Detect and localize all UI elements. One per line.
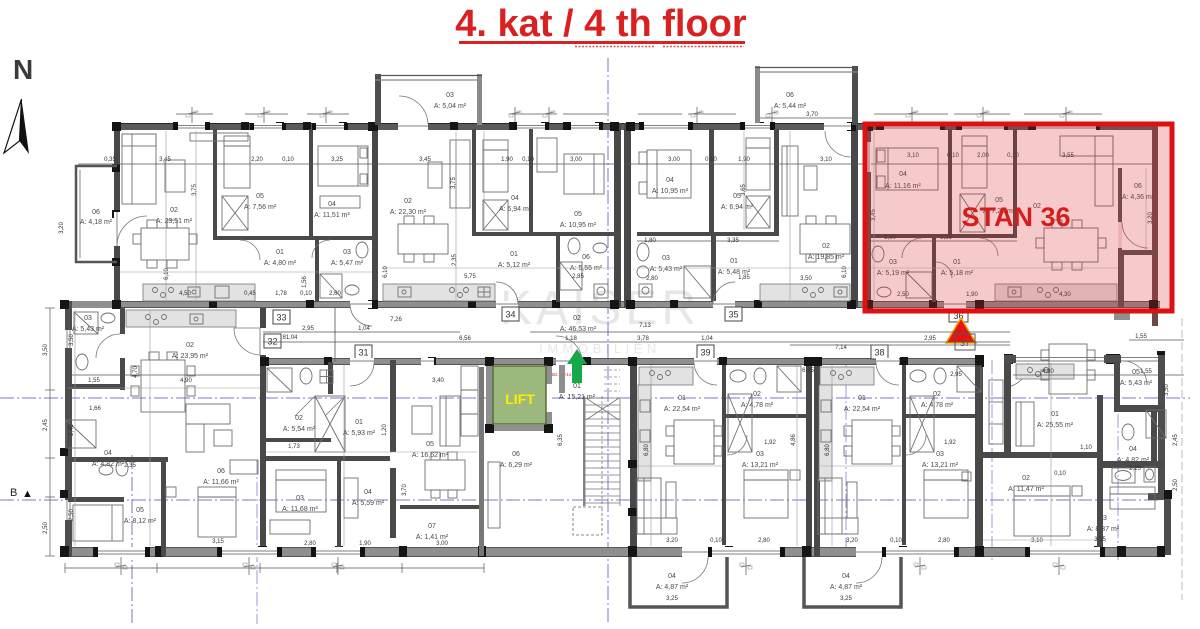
svg-text:0,10: 0,10 (705, 157, 717, 163)
svg-text:3,50: 3,50 (43, 344, 49, 356)
svg-text:2,15: 2,15 (1129, 466, 1141, 472)
svg-text:A: 6,94 m²: A: 6,94 m² (499, 206, 532, 213)
svg-text:03: 03 (296, 495, 304, 502)
svg-text:1,18: 1,18 (565, 336, 577, 342)
svg-text:03: 03 (84, 315, 92, 322)
svg-text:A: 5,54 m²: A: 5,54 m² (283, 426, 316, 433)
svg-text:6,35: 6,35 (802, 368, 814, 374)
svg-text:02: 02 (186, 342, 194, 349)
svg-text:A: 23,51 m²: A: 23,51 m² (156, 218, 193, 225)
svg-text:1,73: 1,73 (288, 444, 300, 450)
svg-text:3,75: 3,75 (192, 184, 198, 196)
svg-text:1,20: 1,20 (382, 424, 388, 436)
svg-text:38: 38 (874, 348, 884, 358)
svg-text:6,56: 6,56 (459, 336, 471, 342)
svg-text:03: 03 (936, 451, 944, 458)
svg-text:06: 06 (512, 451, 520, 458)
svg-text:A: 23,95 m²: A: 23,95 m² (172, 353, 209, 360)
svg-text:01: 01 (730, 258, 738, 265)
svg-text:3,10: 3,10 (820, 157, 832, 163)
svg-text:A: 16,62 m²: A: 16,62 m² (412, 452, 449, 459)
svg-text:01: 01 (678, 395, 686, 402)
svg-text:01: 01 (1051, 411, 1059, 418)
svg-text:02: 02 (573, 315, 581, 322)
svg-text:06: 06 (217, 468, 225, 475)
svg-text:3,78: 3,78 (637, 336, 649, 342)
svg-text:6,80: 6,80 (644, 444, 650, 456)
svg-text:6,80: 6,80 (825, 444, 831, 456)
svg-text:A: 11,51 m²: A: 11,51 m² (314, 212, 350, 219)
svg-text:A: 5,93 m²: A: 5,93 m² (343, 430, 376, 437)
svg-text:3,70: 3,70 (402, 484, 408, 496)
svg-text:3,00: 3,00 (570, 157, 582, 163)
svg-text:02: 02 (822, 243, 830, 250)
svg-text:04: 04 (666, 177, 674, 184)
svg-text:32: 32 (267, 337, 277, 347)
svg-text:5,75: 5,75 (464, 274, 476, 280)
svg-text:02: 02 (404, 198, 412, 205)
svg-text:A: 5,43 m²: A: 5,43 m² (650, 266, 683, 273)
svg-text:03: 03 (756, 451, 764, 458)
svg-text:A: 11,47 m²: A: 11,47 m² (1008, 486, 1044, 493)
svg-text:A: 8,12 m²: A: 8,12 m² (124, 518, 157, 525)
svg-text:2,45: 2,45 (69, 424, 75, 436)
svg-text:4,50: 4,50 (179, 291, 191, 297)
svg-text:A: 22,54 m²: A: 22,54 m² (664, 406, 701, 413)
svg-text:6,10: 6,10 (164, 268, 170, 280)
svg-text:4,86: 4,86 (791, 434, 797, 446)
svg-text:2,80: 2,80 (646, 276, 658, 282)
svg-text:3,70: 3,70 (806, 112, 818, 118)
svg-text:39: 39 (700, 348, 710, 358)
svg-text:05: 05 (733, 193, 741, 200)
svg-text:3,50: 3,50 (1164, 384, 1170, 396)
svg-text:04: 04 (511, 195, 519, 202)
svg-text:4,90: 4,90 (180, 378, 192, 384)
svg-text:3,00: 3,00 (436, 541, 448, 547)
svg-text:35: 35 (728, 310, 738, 320)
svg-text:2,50: 2,50 (43, 522, 49, 534)
svg-text:05: 05 (256, 193, 264, 200)
svg-text:05: 05 (426, 441, 434, 448)
svg-text:05: 05 (574, 211, 582, 218)
svg-text:IMMOBILIEN: IMMOBILIEN (539, 341, 661, 356)
svg-text:A: 15,21 m²: A: 15,21 m² (559, 394, 596, 401)
svg-text:2,95: 2,95 (924, 336, 936, 342)
svg-text:A: 5,59 m²: A: 5,59 m² (352, 500, 385, 507)
svg-text:37: 37 (960, 338, 970, 348)
svg-text:A: 4,87 m²: A: 4,87 m² (656, 584, 689, 591)
svg-text:1,85: 1,85 (738, 275, 750, 281)
svg-text:A: 4,87 m²: A: 4,87 m² (830, 584, 863, 591)
svg-text:A: 22,54 m²: A: 22,54 m² (844, 406, 881, 413)
svg-text:A: 6,29 m²: A: 6,29 m² (500, 462, 533, 469)
svg-text:LIFT: LIFT (505, 391, 535, 407)
svg-text:1,04: 1,04 (701, 336, 713, 342)
svg-text:A: 4,78 m²: A: 4,78 m² (921, 402, 954, 409)
svg-text:3,10: 3,10 (1031, 538, 1043, 544)
svg-text:▲: ▲ (22, 488, 33, 500)
svg-text:01: 01 (276, 249, 284, 256)
svg-text:1,04: 1,04 (358, 326, 370, 332)
svg-text:A: 4,80 m²: A: 4,80 m² (264, 260, 297, 267)
svg-text:2,20: 2,20 (251, 157, 263, 163)
svg-text:2,35: 2,35 (452, 254, 458, 266)
svg-text:03: 03 (446, 92, 454, 99)
svg-text:7,14: 7,14 (835, 345, 847, 351)
svg-text:A: 25,55 m²: A: 25,55 m² (1037, 422, 1074, 429)
svg-text:A: 6,94 m²: A: 6,94 m² (721, 204, 754, 211)
svg-text:B: B (10, 487, 17, 499)
svg-text:03: 03 (343, 249, 351, 256)
svg-text:A: 19,85 m²: A: 19,85 m² (808, 254, 845, 261)
svg-text:2,45: 2,45 (43, 419, 49, 431)
svg-text:3,25: 3,25 (666, 596, 678, 602)
svg-text:01: 01 (355, 419, 363, 426)
svg-text:A: 7,56 m²: A: 7,56 m² (244, 204, 277, 211)
svg-text:A: 22,30 m²: A: 22,30 m² (390, 209, 427, 216)
svg-text:1,92: 1,92 (764, 440, 776, 446)
svg-text:02: 02 (753, 391, 761, 398)
svg-text:A: 5,44 m²: A: 5,44 m² (774, 103, 807, 110)
svg-text:1,78: 1,78 (275, 291, 287, 297)
svg-text:31: 31 (358, 348, 368, 358)
svg-text:A: 5,47 m²: A: 5,47 m² (331, 260, 364, 267)
svg-text:2,80: 2,80 (938, 538, 950, 544)
svg-text:A: 4,18 m²: A: 4,18 m² (80, 219, 113, 226)
svg-text:02: 02 (1022, 475, 1030, 482)
svg-text:01: 01 (573, 383, 581, 390)
svg-text:2,50: 2,50 (69, 509, 75, 521)
svg-text:06: 06 (92, 209, 100, 216)
svg-text:1,80: 1,80 (644, 238, 656, 244)
svg-text:1,55: 1,55 (88, 378, 100, 384)
svg-text:1,66: 1,66 (89, 406, 101, 412)
svg-text:1,56: 1,56 (302, 276, 308, 288)
svg-text:3,50: 3,50 (69, 334, 75, 346)
svg-text:1,10: 1,10 (1080, 445, 1092, 451)
svg-text:0,10: 0,10 (282, 157, 294, 163)
svg-text:6,10: 6,10 (842, 266, 848, 278)
svg-text:1,90: 1,90 (359, 541, 371, 547)
svg-text:01: 01 (510, 251, 518, 258)
svg-text:34: 34 (505, 310, 515, 320)
svg-text:01: 01 (858, 395, 866, 402)
svg-text:A: 13,21 m²: A: 13,21 m² (922, 462, 959, 469)
svg-text:03: 03 (1099, 515, 1107, 522)
svg-text:A: 5,43 m²: A: 5,43 m² (1120, 380, 1153, 387)
svg-text:N: N (13, 54, 33, 85)
svg-text:3,20: 3,20 (59, 222, 65, 234)
svg-text:3,35: 3,35 (727, 238, 739, 244)
svg-text:04: 04 (364, 489, 372, 496)
svg-text:06: 06 (786, 92, 794, 99)
svg-text:A: 4,78 m²: A: 4,78 m² (741, 402, 774, 409)
svg-text:KAISER: KAISER (500, 282, 700, 335)
svg-text:0,10: 0,10 (1054, 471, 1066, 477)
svg-text:0,10: 0,10 (522, 157, 534, 163)
svg-text:4,70: 4,70 (133, 366, 139, 378)
svg-text:0,10: 0,10 (890, 538, 902, 544)
svg-text:3,40: 3,40 (432, 378, 444, 384)
svg-text:A: 5,43 m²: A: 5,43 m² (72, 326, 105, 333)
svg-text:2,45: 2,45 (1173, 434, 1179, 446)
svg-text:05: 05 (136, 507, 144, 514)
svg-text:3,50: 3,50 (800, 276, 812, 282)
svg-text:81,04: 81,04 (282, 335, 298, 341)
svg-text:0,10: 0,10 (710, 538, 722, 544)
svg-text:7,26: 7,26 (390, 317, 402, 323)
svg-text:02: 02 (295, 415, 303, 422)
svg-text:07: 07 (428, 523, 436, 530)
svg-text:4,80: 4,80 (1042, 369, 1054, 375)
svg-text:04: 04 (842, 573, 850, 580)
svg-text:04: 04 (328, 201, 336, 208)
svg-text:0,35: 0,35 (104, 157, 116, 163)
svg-text:3,25: 3,25 (840, 596, 852, 602)
svg-text:3,00: 3,00 (668, 157, 680, 163)
svg-text:02: 02 (170, 207, 178, 214)
svg-text:1,90: 1,90 (738, 157, 750, 163)
svg-text:2,80: 2,80 (758, 538, 770, 544)
svg-text:03: 03 (662, 255, 670, 262)
svg-text:A: 1,41 m²: A: 1,41 m² (416, 534, 449, 541)
svg-text:A: 5,55 m²: A: 5,55 m² (570, 265, 603, 272)
svg-text:STAN 36: STAN 36 (961, 202, 1070, 232)
svg-text:02: 02 (933, 391, 941, 398)
svg-text:0,10: 0,10 (300, 291, 312, 297)
svg-text:A: 5,04 m²: A: 5,04 m² (434, 103, 467, 110)
svg-text:06: 06 (582, 254, 590, 261)
svg-text:3,45: 3,45 (159, 157, 171, 163)
svg-text:3,15: 3,15 (212, 539, 224, 545)
svg-text:A: 4,82 m²: A: 4,82 m² (1117, 457, 1150, 464)
svg-text:1,55: 1,55 (1135, 334, 1147, 340)
svg-text:04: 04 (1129, 446, 1137, 453)
svg-text:A: 10,95 m²: A: 10,95 m² (560, 222, 597, 229)
svg-text:A: 10,95 m²: A: 10,95 m² (652, 188, 689, 195)
svg-text:0,45: 0,45 (244, 291, 256, 297)
svg-text:2,80: 2,80 (304, 541, 316, 547)
svg-text:A: 11,66 m²: A: 11,66 m² (203, 479, 239, 486)
svg-text:2,95: 2,95 (302, 326, 314, 332)
svg-text:A: 11,68 m²: A: 11,68 m² (282, 506, 318, 513)
svg-text:3,20: 3,20 (666, 538, 678, 544)
svg-text:1,90: 1,90 (501, 157, 513, 163)
svg-text:2,85: 2,85 (572, 274, 584, 280)
svg-text:6,10: 6,10 (383, 266, 389, 278)
svg-text:04: 04 (104, 450, 112, 457)
svg-text:2,50: 2,50 (1173, 479, 1179, 491)
svg-text:6,35: 6,35 (558, 434, 564, 446)
svg-text:3,25: 3,25 (331, 157, 343, 163)
svg-text:1,92: 1,92 (944, 440, 956, 446)
svg-text:1,55: 1,55 (1140, 369, 1152, 375)
svg-text:33: 33 (276, 313, 286, 323)
svg-text:7,13: 7,13 (639, 323, 651, 329)
svg-text:A: 8,37 m²: A: 8,37 m² (1087, 526, 1120, 533)
svg-text:04: 04 (668, 573, 676, 580)
svg-text:2,35: 2,35 (124, 463, 136, 469)
svg-text:3,20: 3,20 (846, 538, 858, 544)
svg-text:A: 13,21 m²: A: 13,21 m² (742, 462, 779, 469)
svg-text:2,60: 2,60 (329, 291, 341, 297)
svg-text:A: 4,82 m²: A: 4,82 m² (92, 461, 125, 468)
svg-text:4. kat / 4 th floor: 4. kat / 4 th floor (455, 3, 747, 45)
svg-text:2,95: 2,95 (950, 372, 962, 378)
svg-text:3,45: 3,45 (419, 157, 431, 163)
